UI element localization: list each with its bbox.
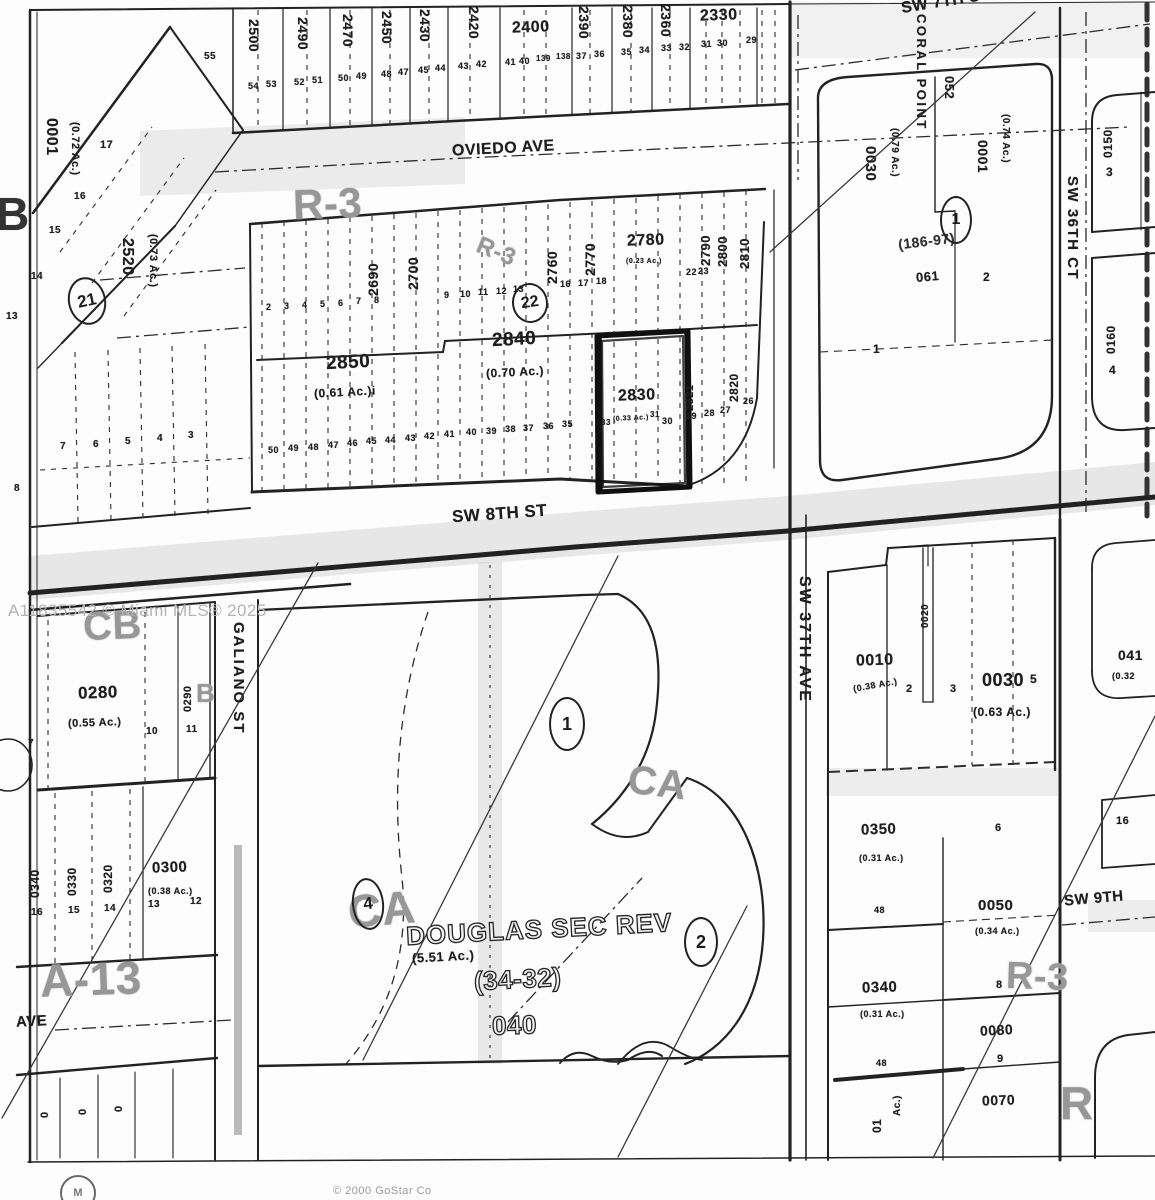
- parcel-0030-south: 0030: [982, 671, 1024, 689]
- parcel-01-fragment: 01: [871, 1119, 883, 1133]
- douglas-acreage: (5.51 Ac.): [412, 948, 475, 964]
- parcel-0300-acreage: (0.38 Ac.): [148, 887, 193, 896]
- zoning-a13: A-13: [39, 954, 142, 1004]
- parcel-0001-coral: 0001: [976, 140, 990, 173]
- lot-number: 4: [157, 434, 163, 444]
- street-sw-36th-ct: SW 36TH CT: [1065, 176, 1080, 280]
- parcel-052: 052: [943, 76, 956, 99]
- lot-number: 52: [294, 78, 305, 87]
- lot-number: 43: [458, 62, 469, 71]
- parcel-2390: 2390: [577, 6, 591, 39]
- lot-number: 27: [720, 406, 731, 415]
- parcel-2380: 2380: [621, 5, 635, 38]
- lot-number: 2: [983, 271, 990, 283]
- parcel-2490: 2490: [296, 17, 310, 50]
- parcel-0001-nw: 0001: [43, 118, 59, 156]
- douglas-plat-ref: (34-32): [473, 964, 562, 995]
- zoning-r3-southeast: R-3: [1005, 957, 1069, 997]
- lot-number: 8: [14, 484, 20, 494]
- lot-number: 22: [686, 268, 697, 277]
- parcel-0350: 0350: [861, 821, 897, 837]
- lot-number: 40: [466, 428, 477, 437]
- circled-tract-2-douglas: 2: [684, 917, 718, 967]
- street-galiano-st: GALIANO ST: [231, 622, 246, 735]
- parcel-0050-acreage: (0.34 Ac.): [975, 927, 1020, 936]
- parcel-acreage-fragment: Ac.): [893, 1095, 903, 1116]
- lot-number: 11: [186, 725, 198, 735]
- lot-number: 23: [698, 267, 709, 276]
- parcel-2520: 2520: [119, 238, 135, 276]
- lot-number: 35: [621, 48, 632, 57]
- parcel-2780: 2780: [627, 232, 665, 249]
- parcel-061: 061: [915, 269, 939, 284]
- parcel-0340-south: 0340: [862, 979, 898, 995]
- lot-number: 33: [661, 44, 672, 53]
- parcel-041-acreage: (0.32: [1112, 672, 1135, 681]
- parcel-2850-acreage: (0.61 Ac.)i: [314, 384, 376, 399]
- parcel-0320: 0320: [102, 864, 114, 893]
- parcel-0340-west: 0340: [29, 869, 41, 898]
- parcel-2850: 2850: [326, 352, 371, 373]
- parcel-2400: 2400: [512, 19, 550, 36]
- parcel-0070: 0070: [982, 1092, 1016, 1107]
- lot-number: 36: [543, 422, 554, 431]
- lot-number: 6: [995, 823, 1002, 834]
- lot-number: 41: [444, 430, 455, 439]
- lot-number: 3: [284, 302, 290, 311]
- lot-number: 33: [601, 419, 611, 427]
- mls-logo-letter: M: [73, 1187, 82, 1199]
- lot-number: 44: [385, 436, 396, 445]
- parcel-2810: 2810: [738, 238, 751, 269]
- subdivision-coral-point: CORAL POINT: [915, 14, 928, 131]
- lot-number: 17: [100, 140, 113, 151]
- lot-number: 14: [31, 272, 43, 282]
- lot-number: 9: [444, 291, 450, 300]
- parcel-lines: [0, 0, 1155, 1200]
- douglas-number-040: 040: [492, 1011, 538, 1039]
- lot-number: 10: [460, 290, 471, 299]
- lot-number: 48: [876, 1059, 887, 1068]
- plat-map-screenshot: OVIEDO AVE SW 8TH ST SW 7TH ST SW 37TH A…: [0, 0, 1155, 1200]
- zoning-b-small: B: [196, 680, 215, 706]
- parcel-0080: 0080: [980, 1022, 1014, 1038]
- lot-number: 45: [418, 66, 429, 75]
- lot-number: 13: [513, 285, 524, 294]
- parcel-2840-acreage: (0.70 Ac.): [486, 364, 544, 379]
- parcel-2700: 2700: [406, 257, 420, 290]
- lot-number: 30: [717, 39, 728, 48]
- lot-number: 2: [906, 684, 913, 695]
- lot-number: 8: [996, 980, 1003, 991]
- lot-number: 50: [268, 446, 279, 455]
- lot-number: 139: [536, 55, 551, 63]
- parcel-041: 041: [1118, 648, 1143, 662]
- parcel-0050: 0050: [978, 898, 1013, 913]
- lot-number: 15: [49, 226, 61, 236]
- lot-number: 5: [1030, 673, 1037, 685]
- lot-number: 29: [686, 412, 697, 421]
- lot-number: 15: [68, 906, 80, 916]
- lot-number: 0: [40, 1111, 51, 1118]
- parcel-0030-south-acreage: (0.63 Ac.): [973, 706, 1031, 718]
- parcel-0020: 0020: [921, 604, 931, 628]
- lot-number: 49: [288, 444, 299, 453]
- lot-number: 53: [266, 80, 277, 89]
- lot-number: 39: [486, 427, 497, 436]
- lot-number: 41: [505, 58, 516, 67]
- parcel-0010: 0010: [856, 652, 894, 669]
- parcel-0030-coral-acreage: (0.79 Ac.): [889, 128, 899, 177]
- parcel-2840: 2840: [492, 329, 537, 350]
- circled-tract-1-coral: 1: [940, 196, 972, 244]
- parcel-0330: 0330: [66, 867, 78, 896]
- parcel-2830-highlighted: 2830: [618, 387, 656, 404]
- lot-number: 31: [701, 40, 712, 49]
- lot-number: 16: [1116, 816, 1129, 827]
- zoning-r-corner: R: [1060, 1080, 1094, 1126]
- lot-number: 138: [556, 53, 571, 61]
- lot-number: 6: [338, 299, 344, 308]
- zoning-b-edge: B: [0, 191, 30, 237]
- parcel-2420: 2420: [467, 6, 481, 39]
- lot-number: 13: [148, 900, 160, 910]
- parcel-0001-coral-acreage: (0.74 Ac.): [1000, 114, 1010, 163]
- lot-number: 14: [104, 904, 116, 914]
- street-sw-37th-ave: SW 37TH AVE: [796, 576, 812, 703]
- highlight-parcel-2830: [597, 331, 690, 492]
- lot-number: 7: [356, 297, 362, 306]
- lot-number: 50: [338, 74, 349, 83]
- lot-4-east: 4: [1109, 364, 1116, 376]
- parcel-0280-acreage: (0.55 Ac.): [68, 717, 122, 730]
- parcel-2690: 2690: [366, 263, 380, 296]
- lot-number: 51: [312, 76, 323, 85]
- lot-number: 44: [435, 64, 446, 73]
- lot-number: 38: [505, 425, 516, 434]
- lot-number: 13: [6, 312, 18, 322]
- lot-number: 1: [873, 343, 880, 355]
- parcel-2360: 2360: [659, 4, 673, 37]
- parcel-0350-acreage: (0.31 Ac.): [859, 854, 904, 863]
- parcel-2500: 2500: [247, 19, 261, 52]
- lot-number: 47: [398, 68, 409, 77]
- lot-number: 7: [60, 442, 66, 452]
- lot-number: 32: [679, 43, 690, 52]
- lot-number: 12: [190, 897, 202, 907]
- lot-number: 16: [74, 192, 86, 202]
- parcel-2450: 2450: [380, 11, 394, 44]
- copyright-line: © 2000 GoStar Co: [333, 1186, 432, 1197]
- lot-number: 45: [366, 437, 377, 446]
- lot-number: 54: [248, 82, 259, 91]
- lot-number: 0: [78, 1108, 89, 1115]
- parcel-2430: 2430: [418, 9, 432, 42]
- lot-3-east: 3: [1106, 166, 1113, 178]
- lot-number: 48: [874, 906, 885, 915]
- lot-number: 16: [31, 908, 43, 918]
- lot-number: 37: [523, 424, 534, 433]
- lot-number: 40: [519, 57, 530, 66]
- lot-number: 5: [320, 300, 326, 309]
- lot-number: 35: [562, 420, 573, 429]
- parcel-2820: 2820: [728, 373, 740, 402]
- parcel-0340-south-acreage: (0.31 Ac.): [860, 1010, 905, 1019]
- lot-number: 42: [424, 432, 435, 441]
- zoning-ca-east: CA: [626, 760, 689, 807]
- lot-number: 5: [125, 437, 131, 447]
- lot-number: 47: [328, 441, 339, 450]
- lot-number: (0.23 Ac.): [626, 258, 662, 265]
- street-ave: AVE: [16, 1013, 48, 1030]
- lot-number: 3: [188, 431, 194, 441]
- lot-number: 28: [704, 409, 715, 418]
- lot-number: 0: [114, 1105, 125, 1112]
- lot-number: 43: [405, 434, 416, 443]
- lot-number: 18: [596, 277, 607, 286]
- mls-watermark: A11835542 © Miami MLS® 2025: [8, 602, 267, 619]
- parcel-0290: 0290: [183, 686, 194, 712]
- parcel-0300: 0300: [152, 859, 188, 875]
- lot-number: 17: [578, 279, 589, 288]
- lot-number: 36: [594, 50, 605, 59]
- parcel-0160: 0160: [1105, 325, 1117, 354]
- parcel-2470: 2470: [341, 14, 355, 47]
- lot-number: 2: [266, 303, 272, 312]
- lot-number: 12: [496, 287, 507, 296]
- parcel-0030-coral: 0030: [863, 146, 878, 181]
- lot-number: 42: [476, 60, 487, 69]
- lot-number: 16: [560, 280, 571, 289]
- circled-tract-1-douglas: 1: [549, 697, 585, 751]
- lot-number: 10: [146, 727, 158, 737]
- parcel-2821: 2821: [685, 385, 696, 411]
- parcel-0001-nw-acreage: (0.72 Ac.): [69, 122, 80, 176]
- lot-number: 9: [997, 1054, 1004, 1065]
- zoning-r3-northwest: R-3: [292, 182, 363, 226]
- lot-number: 26: [743, 397, 754, 406]
- lot-number: 31: [650, 411, 660, 419]
- lot-number: 7: [28, 739, 34, 749]
- lot-number: 37: [576, 52, 587, 61]
- lot-number: 46: [347, 439, 358, 448]
- lot-number: 48: [308, 443, 319, 452]
- parcel-2790: 2790: [699, 235, 712, 266]
- lot-number: 48: [381, 70, 392, 79]
- lot-number: 55: [204, 52, 216, 62]
- parcel-2800: 2800: [716, 236, 729, 267]
- lot-number: 49: [356, 72, 367, 81]
- lot-number: 11: [478, 288, 489, 297]
- parcel-2770: 2770: [583, 243, 597, 276]
- lot-number: 30: [662, 417, 673, 426]
- lot-number: 6: [93, 440, 99, 450]
- lot-number: 4: [302, 301, 308, 310]
- parcel-2520-acreage: (0.73 Ac.): [147, 234, 158, 288]
- lot-number: 8: [374, 296, 380, 305]
- parcel-0280: 0280: [78, 683, 118, 701]
- parcel-2330: 2330: [700, 7, 738, 24]
- parcel-2760: 2760: [545, 251, 559, 284]
- lot-number: 34: [639, 46, 650, 55]
- lot-number: 3: [950, 684, 957, 695]
- lot-number: 29: [746, 36, 757, 45]
- parcel-0150: 0150: [1102, 129, 1114, 158]
